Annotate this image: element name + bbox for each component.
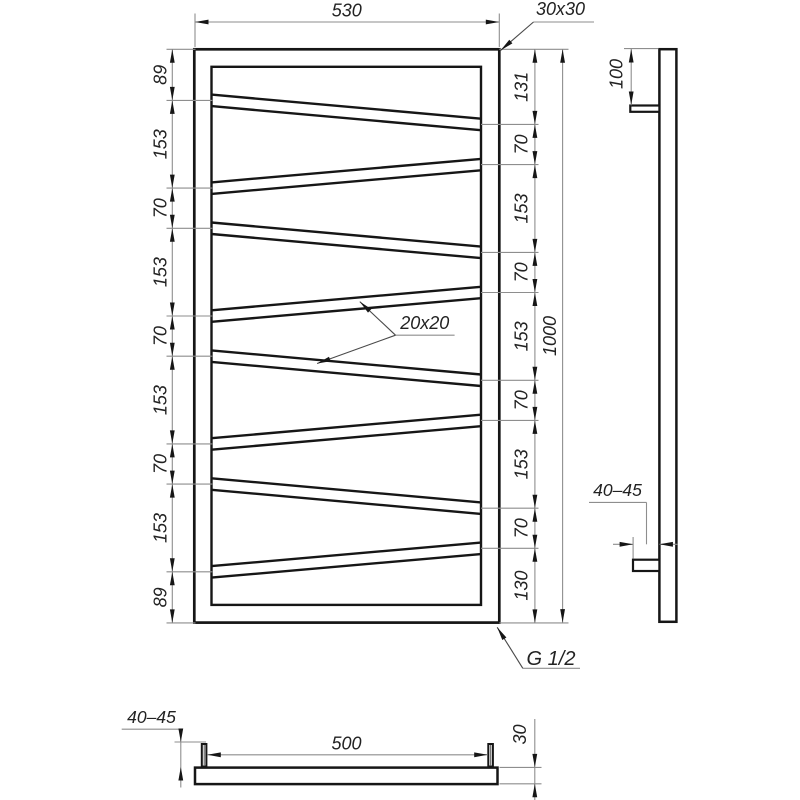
svg-text:153: 153 [150, 513, 170, 543]
svg-text:70: 70 [512, 390, 532, 410]
svg-text:70: 70 [150, 198, 170, 218]
svg-text:130: 130 [512, 571, 532, 601]
svg-text:100: 100 [607, 59, 627, 89]
svg-text:70: 70 [512, 134, 532, 154]
svg-text:153: 153 [150, 385, 170, 415]
svg-text:30: 30 [510, 724, 530, 744]
svg-text:70: 70 [512, 518, 532, 538]
svg-text:1000: 1000 [540, 316, 560, 356]
svg-text:70: 70 [512, 262, 532, 282]
svg-text:153: 153 [512, 193, 532, 223]
svg-text:530: 530 [332, 1, 362, 21]
svg-text:70: 70 [150, 326, 170, 346]
svg-text:89: 89 [150, 65, 170, 85]
svg-text:G 1/2: G 1/2 [527, 648, 576, 670]
svg-text:500: 500 [331, 734, 361, 754]
svg-text:153: 153 [512, 449, 532, 479]
svg-text:40–45: 40–45 [127, 707, 176, 727]
svg-text:89: 89 [150, 587, 170, 607]
svg-text:131: 131 [512, 72, 532, 102]
svg-text:70: 70 [150, 454, 170, 474]
svg-text:40–45: 40–45 [593, 480, 642, 500]
svg-text:20x20: 20x20 [399, 313, 449, 333]
svg-text:153: 153 [150, 257, 170, 287]
svg-text:30x30: 30x30 [536, 0, 585, 19]
svg-text:153: 153 [512, 321, 532, 351]
svg-text:153: 153 [150, 129, 170, 159]
